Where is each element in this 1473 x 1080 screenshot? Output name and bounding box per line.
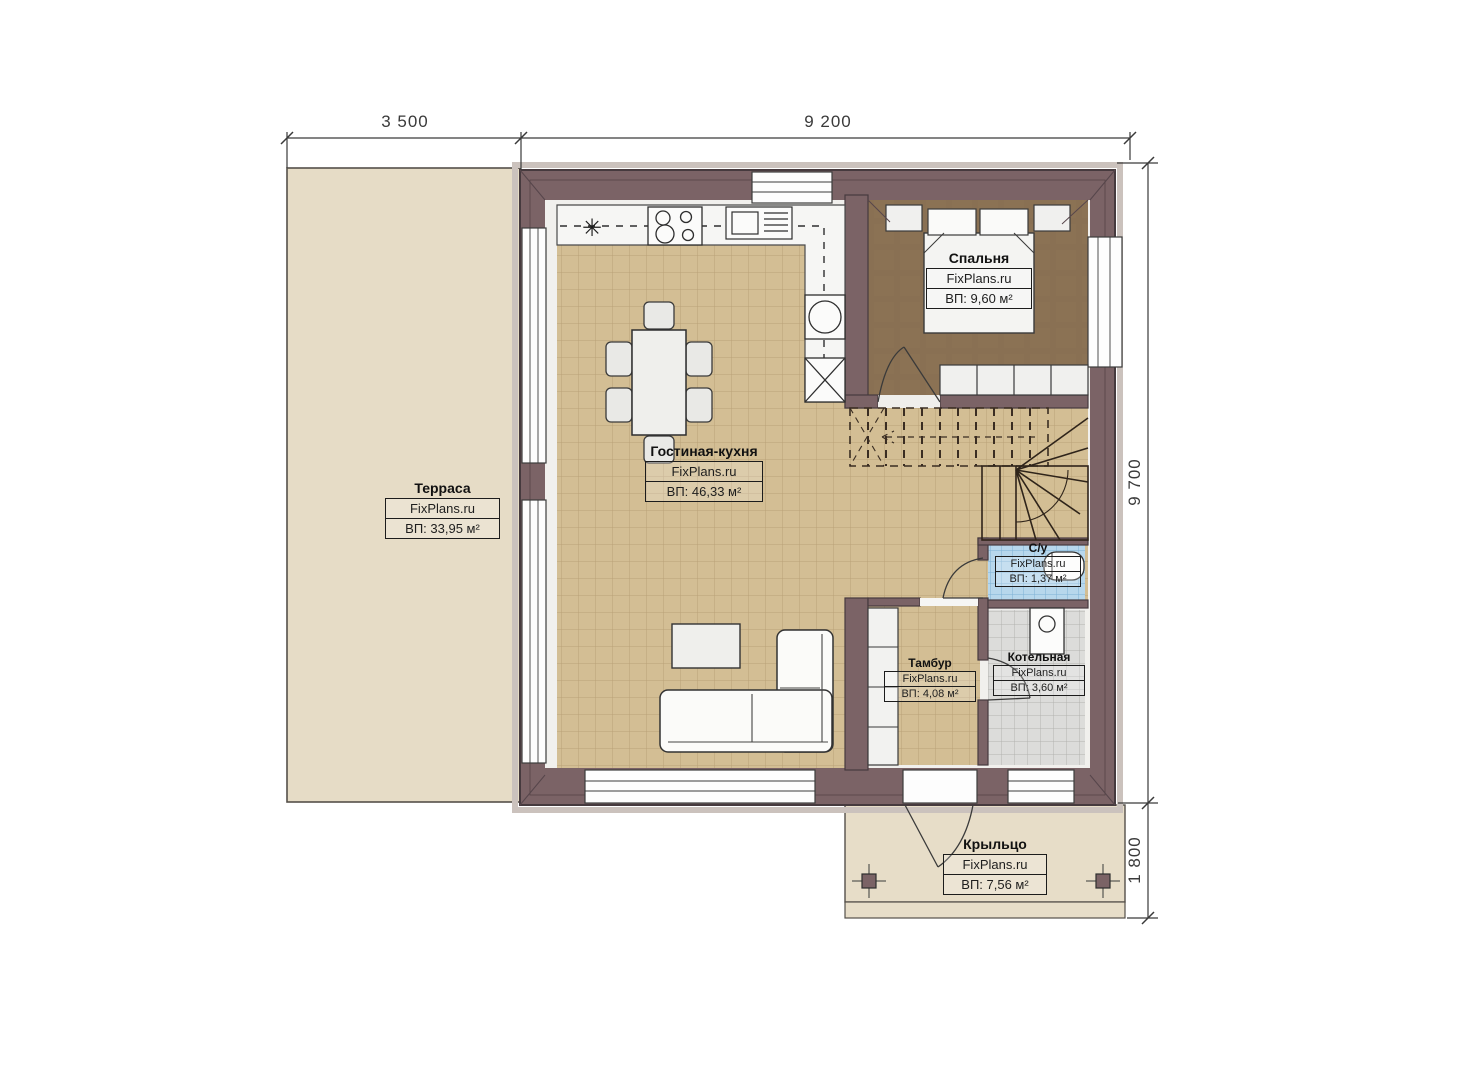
room-info-box: FixPlans.ru ВП: 7,56 м²: [943, 854, 1047, 895]
room-area: ВП: 3,60 м²: [994, 681, 1084, 695]
floor-plan-svg: ✳: [0, 0, 1473, 1080]
kitchen-sink: [726, 207, 792, 239]
watermark-text: FixPlans.ru: [885, 672, 975, 687]
wall-living-tambour: [845, 598, 868, 770]
room-area: ВП: 9,60 м²: [927, 289, 1031, 308]
window-bedroom-right: [1088, 237, 1122, 367]
dining-table: [632, 330, 686, 435]
window-living-bottom: [585, 770, 815, 803]
room-info-box: FixPlans.ru ВП: 1,37 м²: [995, 556, 1081, 587]
dimension-label-terrace-width: 3 500: [345, 112, 465, 132]
room-title: Котельная: [993, 650, 1085, 664]
nightstand-right: [1034, 205, 1070, 231]
room-label-porch: Крыльцо FixPlans.ru ВП: 7,56 м²: [943, 836, 1047, 895]
room-title: Спальня: [926, 250, 1032, 266]
room-info-box: FixPlans.ru ВП: 46,33 м²: [645, 461, 763, 502]
watermark-text: FixPlans.ru: [994, 666, 1084, 681]
pillow-right: [980, 209, 1028, 235]
round-sink: [805, 295, 845, 339]
room-label-terrace: Терраса FixPlans.ru ВП: 33,95 м²: [385, 480, 500, 539]
wall-tambour-top: [868, 598, 920, 606]
bedroom-door-opening: [878, 395, 940, 408]
pillow-left: [928, 209, 976, 235]
room-title: Гостиная-кухня: [645, 443, 763, 459]
room-area: ВП: 46,33 м²: [646, 482, 762, 501]
wall-boiler-left: [978, 700, 988, 765]
watermark-text: FixPlans.ru: [944, 855, 1046, 875]
room-area: ВП: 7,56 м²: [944, 875, 1046, 894]
stove: [648, 207, 702, 245]
wall-bath-left-mid: [978, 598, 988, 660]
room-label-tambour: Тамбур FixPlans.ru ВП: 4,08 м²: [884, 656, 976, 702]
wardrobe: [940, 365, 1088, 395]
window-top-kitchen: [752, 172, 832, 203]
room-area: ВП: 4,08 м²: [885, 687, 975, 701]
tambour-door-opening: [920, 598, 978, 606]
window-left-lower: [522, 500, 546, 763]
floor-plan-canvas: ✳: [0, 0, 1473, 1080]
nightstand-left: [886, 205, 922, 231]
room-label-bathroom: С/у FixPlans.ru ВП: 1,37 м²: [995, 541, 1081, 587]
dimension-label-house-width: 9 200: [768, 112, 888, 132]
room-title: С/у: [995, 541, 1081, 555]
window-boiler-bottom: [1008, 770, 1074, 803]
room-title: Тамбур: [884, 656, 976, 670]
room-info-box: FixPlans.ru ВП: 3,60 м²: [993, 665, 1085, 696]
dimension-label-house-depth: 9 700: [1125, 442, 1145, 522]
boiler-unit: [1030, 608, 1064, 654]
watermark-text: FixPlans.ru: [646, 462, 762, 482]
ceiling-light-icon: ✳: [582, 215, 602, 242]
room-label-bedroom: Спальня FixPlans.ru ВП: 9,60 м²: [926, 250, 1032, 309]
wall-bedroom-bottom-left: [845, 395, 878, 408]
room-info-box: FixPlans.ru ВП: 9,60 м²: [926, 268, 1032, 309]
room-label-living: Гостиная-кухня FixPlans.ru ВП: 46,33 м²: [645, 443, 763, 502]
room-area: ВП: 1,37 м²: [996, 572, 1080, 586]
watermark-text: FixPlans.ru: [927, 269, 1031, 289]
dishwasher: [805, 358, 845, 402]
watermark-text: FixPlans.ru: [386, 499, 499, 519]
room-label-boiler: Котельная FixPlans.ru ВП: 3,60 м²: [993, 650, 1085, 696]
wall-kitchen-bedroom: [845, 195, 868, 408]
room-info-box: FixPlans.ru ВП: 4,08 м²: [884, 671, 976, 702]
window-left-upper: [522, 228, 546, 463]
entry-door-opening: [903, 770, 977, 803]
room-area: ВП: 33,95 м²: [386, 519, 499, 538]
room-title: Крыльцо: [943, 836, 1047, 852]
wall-bedroom-bottom-right: [940, 395, 1088, 408]
room-info-box: FixPlans.ru ВП: 33,95 м²: [385, 498, 500, 539]
dimension-label-porch-depth: 1 800: [1125, 820, 1145, 900]
coffee-table: [672, 624, 740, 668]
wall-bath-boiler: [988, 600, 1088, 608]
room-title: Терраса: [385, 480, 500, 496]
watermark-text: FixPlans.ru: [996, 557, 1080, 572]
